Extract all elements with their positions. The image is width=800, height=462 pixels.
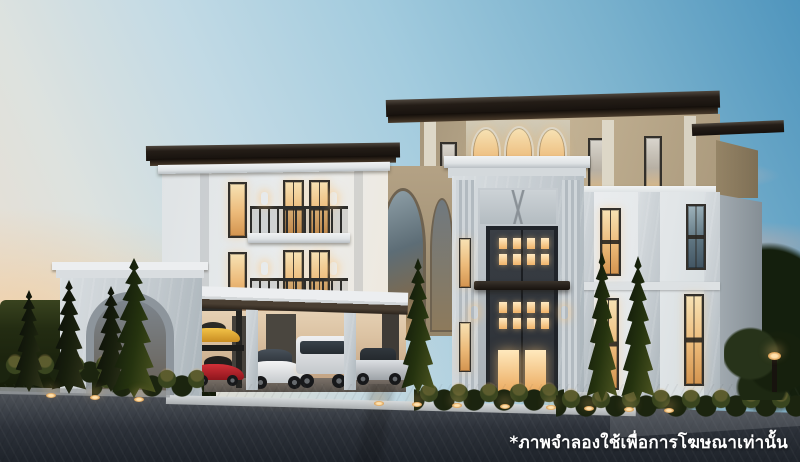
entrance-sconce — [471, 306, 478, 319]
ground-light — [546, 405, 556, 410]
door-glazing-upper — [499, 238, 549, 265]
door-pane — [527, 238, 535, 249]
pilaster — [602, 120, 614, 192]
door-pane — [541, 318, 549, 329]
entrance-cap — [444, 156, 590, 168]
ground-light — [624, 407, 634, 412]
ground-light — [134, 397, 144, 402]
ground-light — [664, 408, 674, 413]
sidelight-window — [459, 238, 471, 288]
wall-sconce — [261, 262, 268, 275]
wall-sconce — [330, 262, 337, 275]
upper-floor-window — [644, 136, 662, 190]
door-pane — [499, 302, 507, 313]
entrance-sconce — [561, 306, 568, 319]
disclaimer-text: *ภาพจำลองใช้เพื่อการโฆษณาเท่านั้น — [509, 429, 788, 456]
door-pane — [499, 318, 507, 329]
ground-floor-window — [684, 294, 704, 386]
wall-sconce — [261, 192, 268, 205]
bollard-light — [768, 352, 781, 360]
door-pane — [499, 254, 507, 265]
silver-classic-car — [350, 348, 408, 386]
carport-column — [246, 296, 258, 390]
front-door — [490, 230, 554, 398]
door-pane — [527, 302, 535, 313]
ground-light — [584, 406, 594, 411]
door-glazing-middle — [499, 302, 549, 329]
ground-light — [412, 402, 422, 407]
arch-window-partial — [430, 198, 454, 332]
ground-light — [374, 401, 384, 406]
ground-light — [46, 393, 56, 398]
door-pane — [499, 238, 507, 249]
door-pane — [513, 238, 521, 249]
second-floor-window-dark — [686, 204, 706, 270]
round-bush — [724, 316, 800, 400]
door-pane — [541, 254, 549, 265]
door-pane — [527, 254, 535, 265]
door-pane — [541, 302, 549, 313]
ground-light — [90, 395, 100, 400]
marble-pilaster — [704, 192, 720, 400]
door-pane — [527, 318, 535, 329]
door-pane — [513, 302, 521, 313]
entrance-hedge — [414, 380, 564, 412]
ground-light — [452, 403, 462, 408]
second-floor-window — [600, 208, 621, 276]
gate-cornice — [52, 262, 208, 270]
door-pane — [513, 254, 521, 265]
car-windows — [300, 341, 346, 354]
door-pane — [541, 238, 549, 249]
ground-light — [500, 404, 510, 409]
mansion-dusk-rendering: *ภาพจำลองใช้เพื่อการโฆษณาเท่านั้น — [0, 0, 800, 462]
upper-balcony-slab — [248, 233, 350, 243]
door-pane — [513, 318, 521, 329]
door-canopy — [474, 281, 570, 290]
bollard-post — [772, 356, 777, 392]
carport-column — [344, 300, 356, 390]
sidelight-window — [459, 322, 471, 372]
wall-sconce — [330, 192, 337, 205]
portal-header-panel — [480, 190, 556, 224]
third-floor-window — [228, 182, 247, 238]
